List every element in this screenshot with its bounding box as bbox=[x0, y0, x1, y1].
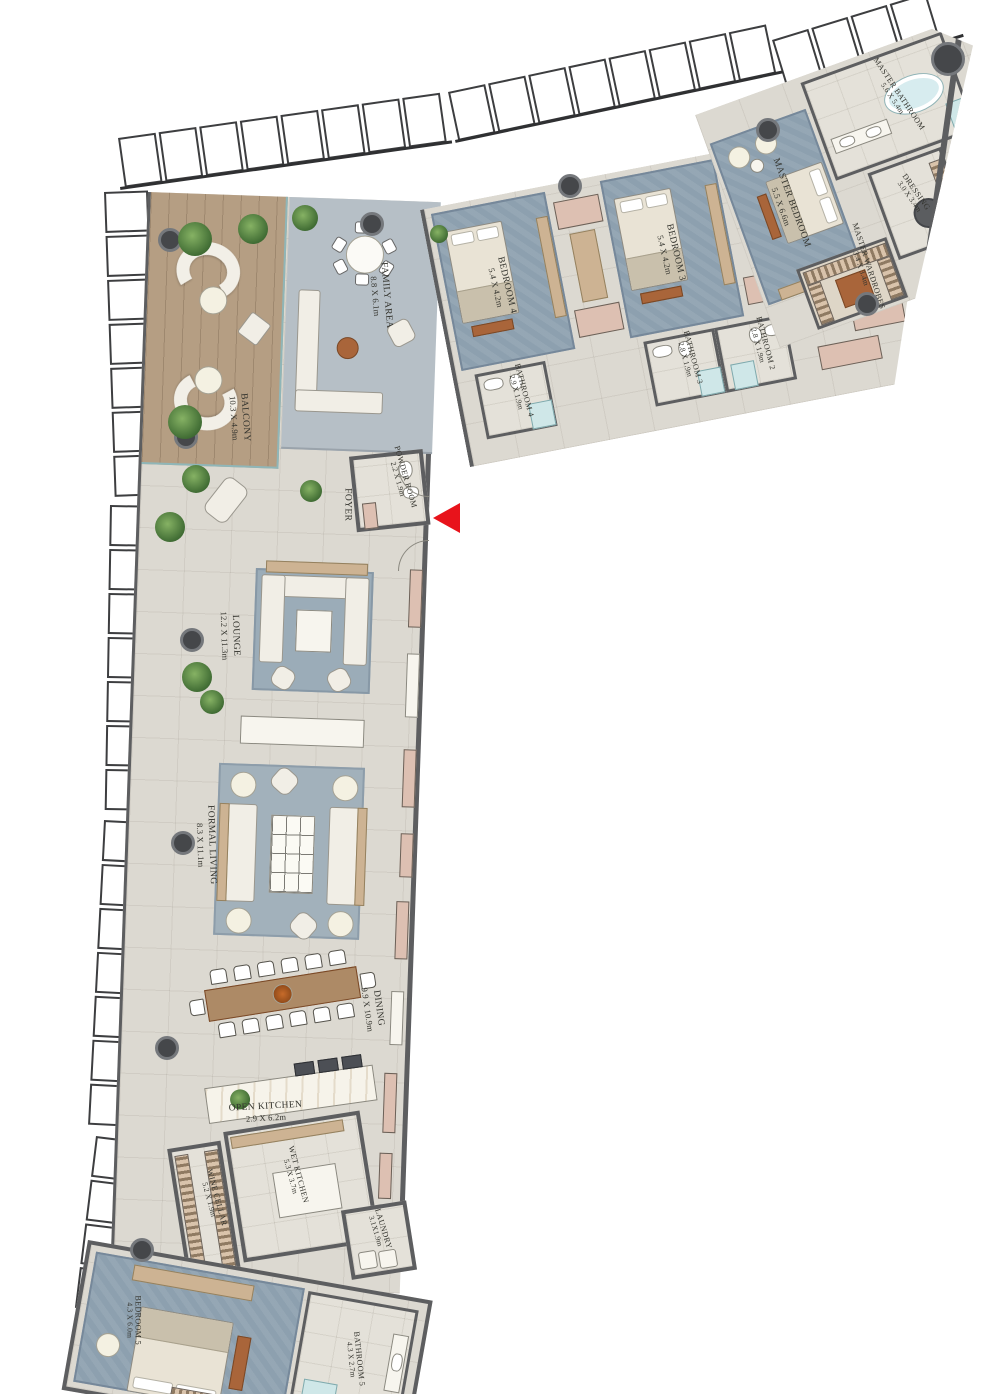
column bbox=[558, 174, 582, 198]
dining-chair bbox=[265, 1013, 284, 1030]
washer bbox=[358, 1250, 379, 1271]
armchair bbox=[268, 764, 302, 798]
facade-panel bbox=[362, 98, 407, 153]
column bbox=[756, 118, 780, 142]
tv-console bbox=[536, 216, 567, 318]
bed-bench bbox=[471, 318, 514, 337]
column bbox=[155, 1036, 179, 1060]
dining-chair bbox=[189, 998, 206, 1016]
coffee-table bbox=[295, 609, 332, 652]
dining-chair bbox=[289, 1010, 308, 1027]
vanity bbox=[383, 1333, 409, 1393]
room-family-area bbox=[281, 197, 441, 454]
room-label-foyer: FOYER bbox=[341, 488, 352, 521]
dining-chair bbox=[328, 949, 347, 966]
shower bbox=[297, 1379, 338, 1394]
facade-panel bbox=[321, 104, 366, 159]
console-table bbox=[389, 991, 404, 1045]
entry-arrow bbox=[433, 503, 460, 533]
dining-chair bbox=[355, 273, 369, 285]
bar-stool bbox=[294, 1061, 316, 1077]
dining-chair bbox=[233, 964, 252, 981]
dining-chair bbox=[304, 953, 323, 970]
plant bbox=[182, 465, 210, 493]
console-table bbox=[399, 833, 414, 877]
column bbox=[180, 628, 204, 652]
plant bbox=[430, 225, 448, 243]
console-table bbox=[402, 749, 417, 807]
sofa bbox=[224, 803, 257, 902]
facade-panel bbox=[199, 121, 244, 176]
plant bbox=[178, 222, 212, 256]
facade-panel bbox=[118, 133, 163, 188]
plant bbox=[168, 405, 202, 439]
bed-bench bbox=[640, 286, 683, 305]
dining-chair bbox=[217, 1021, 236, 1038]
column bbox=[171, 831, 195, 855]
left-wing-floor: BALCONY10.3 X 4.9m FAMILY AREA8.8 X 6.1m bbox=[110, 192, 438, 1293]
sofa-back bbox=[354, 808, 367, 906]
bar-stool bbox=[317, 1057, 339, 1073]
floor-plan: BALCONY10.3 X 4.9m FAMILY AREA8.8 X 6.1m bbox=[0, 0, 1000, 1394]
lounge-chair bbox=[237, 311, 272, 346]
plant bbox=[238, 214, 268, 244]
bar-stool bbox=[341, 1054, 363, 1070]
wardrobe-run bbox=[807, 281, 835, 325]
column bbox=[360, 212, 384, 236]
console-table bbox=[408, 569, 423, 627]
coffee-table bbox=[336, 337, 359, 360]
vanity bbox=[362, 502, 379, 529]
column bbox=[855, 292, 879, 316]
formal-living-rug bbox=[213, 763, 365, 940]
facade-panel bbox=[280, 110, 325, 165]
room-label-dining: DINING9.9 X 10.9m bbox=[359, 985, 386, 1032]
pouf bbox=[327, 911, 354, 938]
family-sofa bbox=[294, 389, 383, 414]
dryer bbox=[378, 1249, 399, 1270]
pouf bbox=[225, 907, 252, 934]
sink bbox=[483, 376, 505, 392]
column bbox=[130, 1238, 154, 1262]
room-label-formal-living: FORMAL LIVING8.3 X 11.1m bbox=[194, 805, 218, 885]
sink bbox=[651, 344, 673, 360]
round-coffee-table bbox=[199, 286, 228, 315]
armchair bbox=[324, 665, 354, 695]
closet-runner bbox=[569, 229, 608, 303]
lounge-rug bbox=[252, 568, 374, 694]
wardrobe bbox=[817, 335, 882, 370]
facade-panel bbox=[240, 116, 285, 171]
bed-bench bbox=[228, 1335, 251, 1391]
armchair bbox=[287, 909, 321, 943]
dining-chair bbox=[336, 1002, 355, 1019]
wardrobe bbox=[574, 302, 624, 338]
double-vanity bbox=[830, 119, 892, 155]
plant bbox=[200, 690, 224, 714]
shower bbox=[730, 360, 759, 390]
facade-panel bbox=[106, 234, 151, 277]
armchair bbox=[725, 143, 753, 171]
pouf bbox=[230, 771, 257, 798]
facade-strip-top-1 bbox=[118, 93, 447, 188]
room-label-balcony: BALCONY10.3 X 4.9m bbox=[227, 393, 252, 443]
room-bedroom5 bbox=[73, 1252, 305, 1394]
plant bbox=[292, 205, 318, 231]
facade-panel bbox=[159, 127, 204, 182]
pouf bbox=[332, 775, 359, 802]
dining-chair bbox=[280, 956, 299, 973]
plant bbox=[182, 662, 212, 692]
dining-chair bbox=[256, 960, 275, 977]
console-table bbox=[394, 901, 409, 959]
coffee-table bbox=[269, 815, 316, 894]
dining-chair bbox=[209, 968, 228, 985]
wardrobe bbox=[553, 194, 603, 230]
room-label-bedroom5: BEDROOM 54.3 X 6.0m bbox=[124, 1295, 142, 1345]
sofa-back-console bbox=[266, 560, 368, 576]
facade-panel bbox=[402, 93, 447, 148]
console-table bbox=[405, 653, 420, 717]
sectional-sofa bbox=[343, 577, 370, 666]
desk bbox=[132, 1264, 255, 1301]
dining-chair bbox=[312, 1006, 331, 1023]
plant bbox=[300, 480, 322, 502]
armchair bbox=[94, 1331, 122, 1359]
dining-chair bbox=[241, 1017, 260, 1034]
column bbox=[931, 42, 965, 76]
centerpiece bbox=[271, 983, 294, 1006]
armchair bbox=[268, 663, 298, 693]
dining-set bbox=[186, 938, 377, 1047]
facade-panel bbox=[104, 190, 149, 233]
lounge-console bbox=[240, 716, 365, 748]
sectional-sofa bbox=[259, 574, 286, 663]
room-label-lounge: LOUNGE12.2 X 11.3m bbox=[219, 611, 242, 661]
plant bbox=[155, 512, 185, 542]
